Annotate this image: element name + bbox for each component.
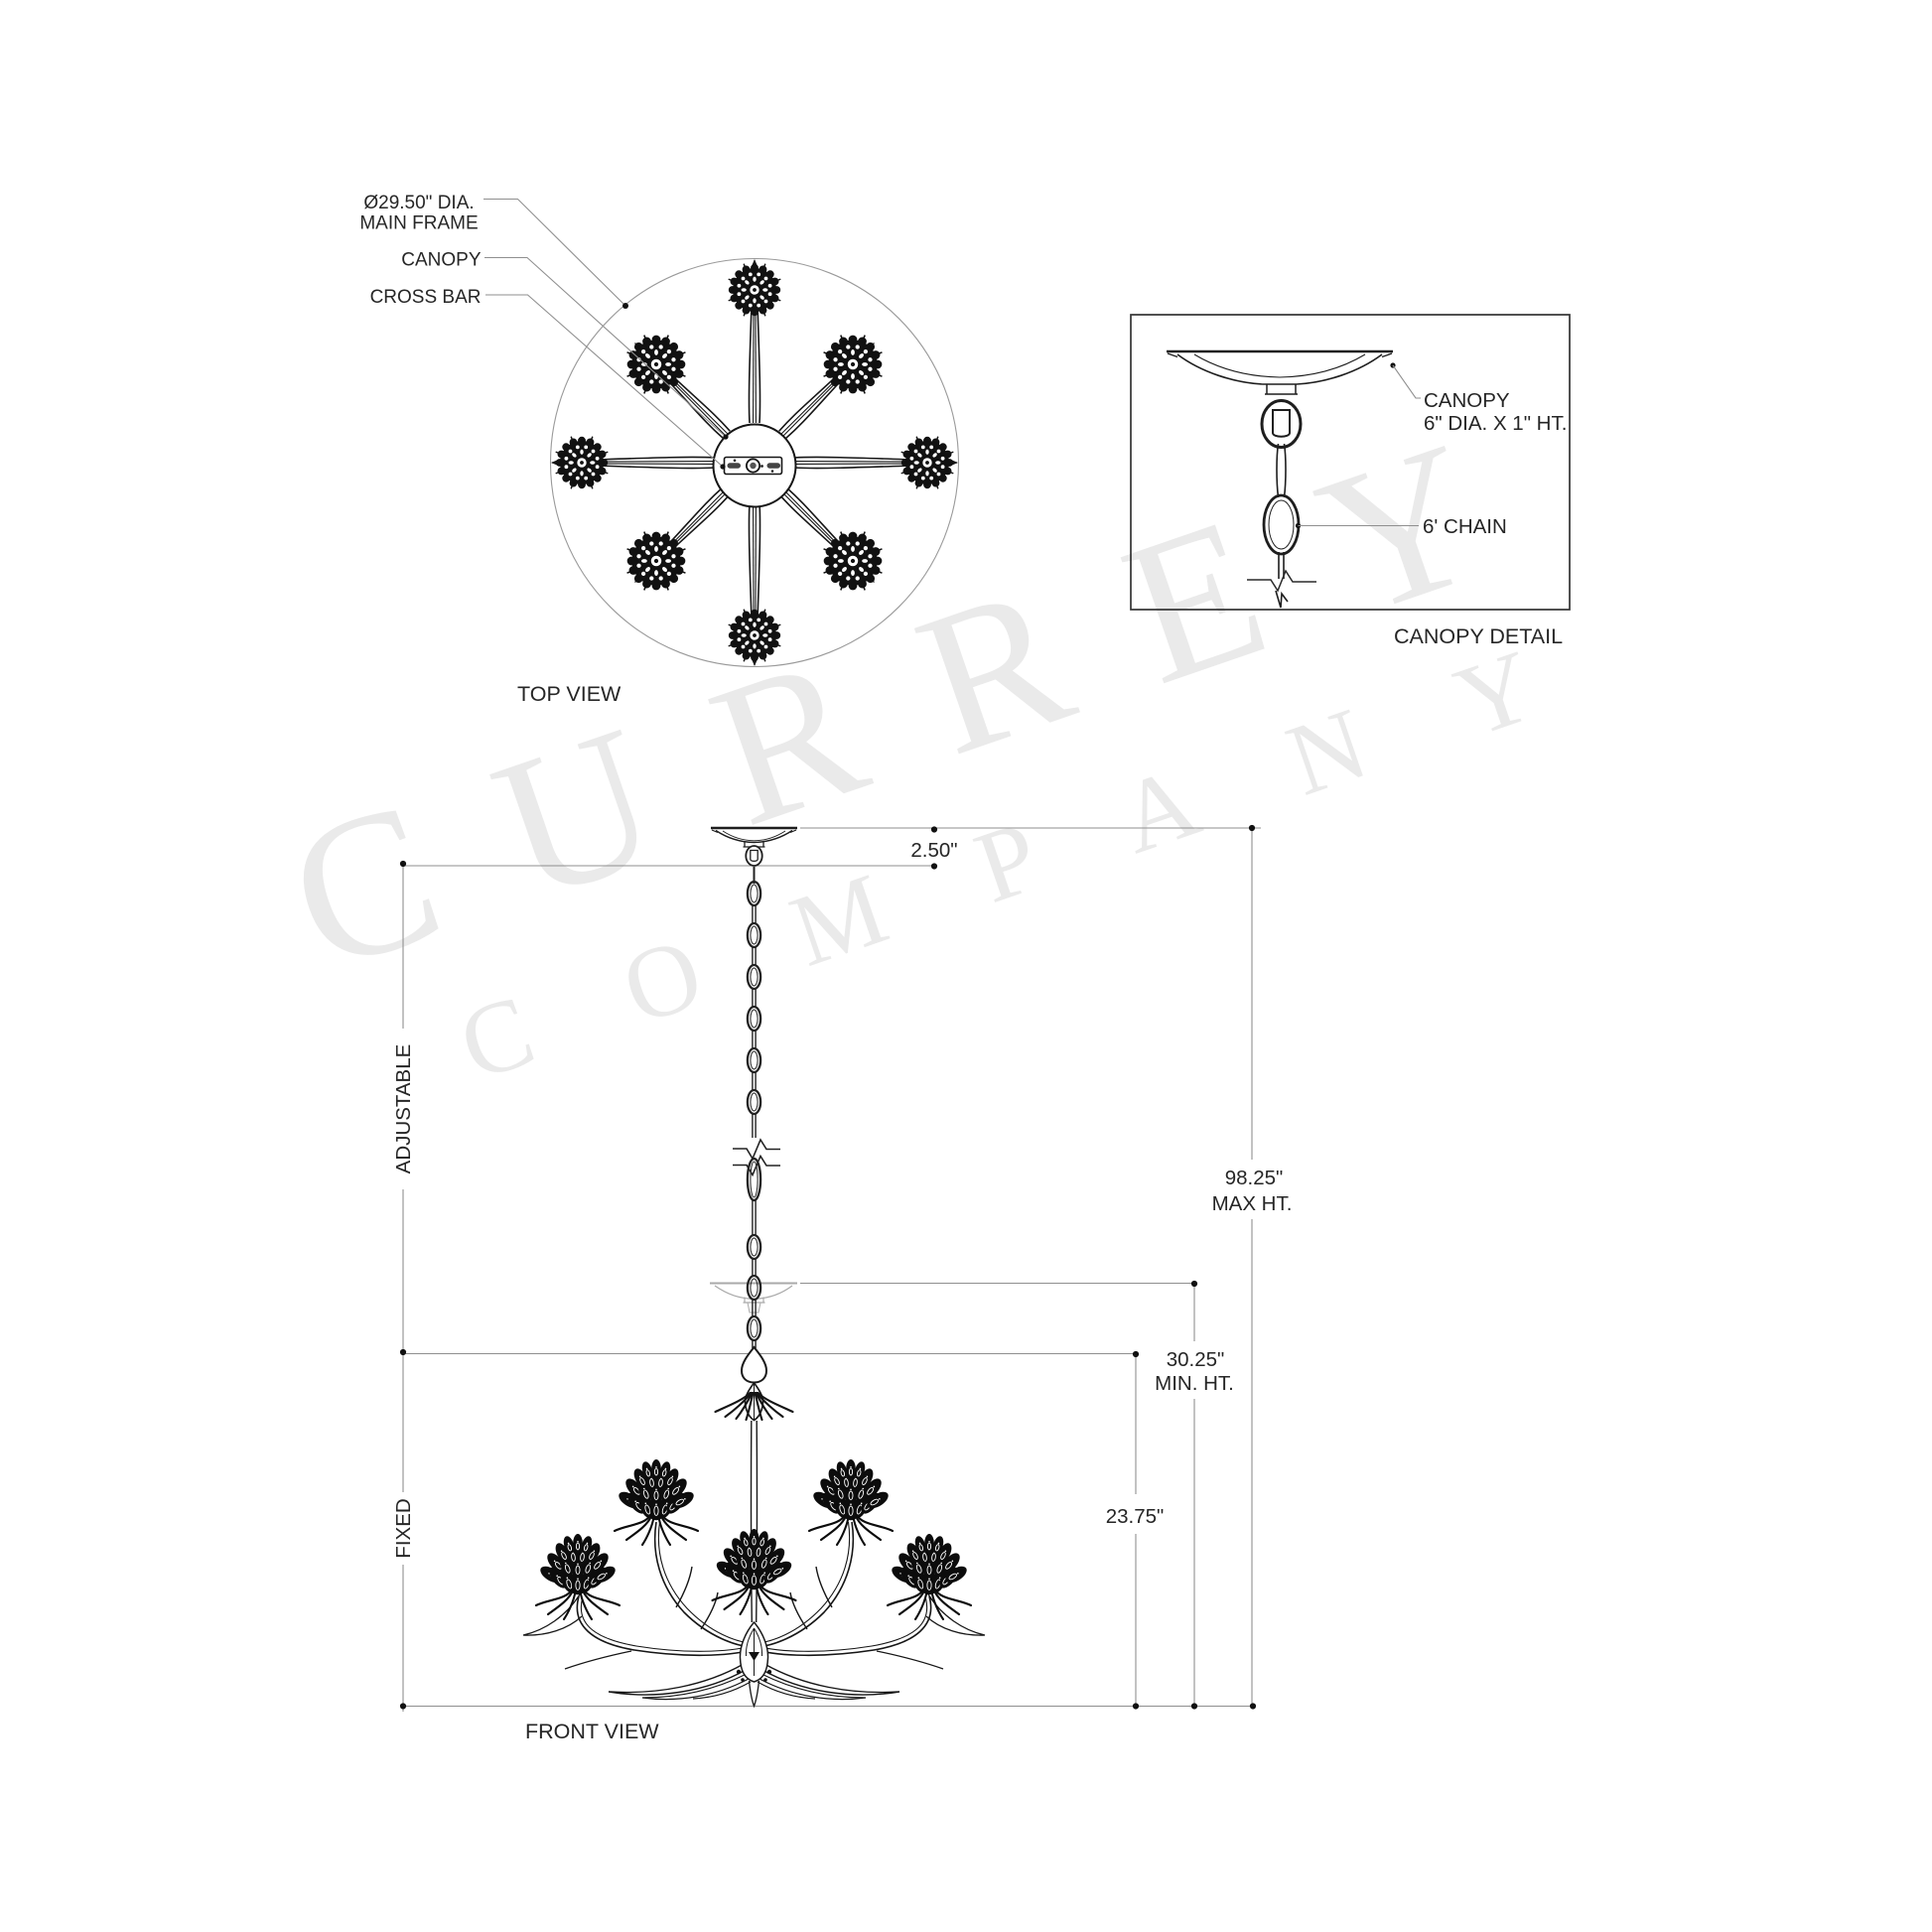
- svg-text:CROSS BAR: CROSS BAR: [370, 287, 482, 308]
- svg-text:98.25": 98.25": [1225, 1167, 1284, 1189]
- svg-text:MAX HT.: MAX HT.: [1212, 1192, 1293, 1215]
- svg-text:6" DIA. X 1" HT.: 6" DIA. X 1" HT.: [1424, 412, 1567, 435]
- svg-text:MAIN FRAME: MAIN FRAME: [359, 213, 478, 234]
- svg-text:CANOPY: CANOPY: [1424, 389, 1510, 412]
- svg-text:TOP VIEW: TOP VIEW: [517, 682, 621, 706]
- svg-text:CANOPY: CANOPY: [401, 250, 482, 271]
- svg-text:6' CHAIN: 6' CHAIN: [1423, 515, 1507, 538]
- svg-text:Ø29.50" DIA.: Ø29.50" DIA.: [363, 193, 474, 213]
- svg-text:2.50": 2.50": [910, 839, 957, 862]
- svg-text:30.25": 30.25": [1167, 1348, 1225, 1371]
- svg-text:FRONT VIEW: FRONT VIEW: [525, 1720, 659, 1743]
- svg-text:MIN. HT.: MIN. HT.: [1155, 1372, 1234, 1395]
- svg-text:FIXED: FIXED: [392, 1498, 415, 1558]
- svg-text:CANOPY DETAIL: CANOPY DETAIL: [1394, 624, 1563, 648]
- svg-text:ADJUSTABLE: ADJUSTABLE: [392, 1044, 415, 1174]
- svg-text:23.75": 23.75": [1106, 1505, 1165, 1528]
